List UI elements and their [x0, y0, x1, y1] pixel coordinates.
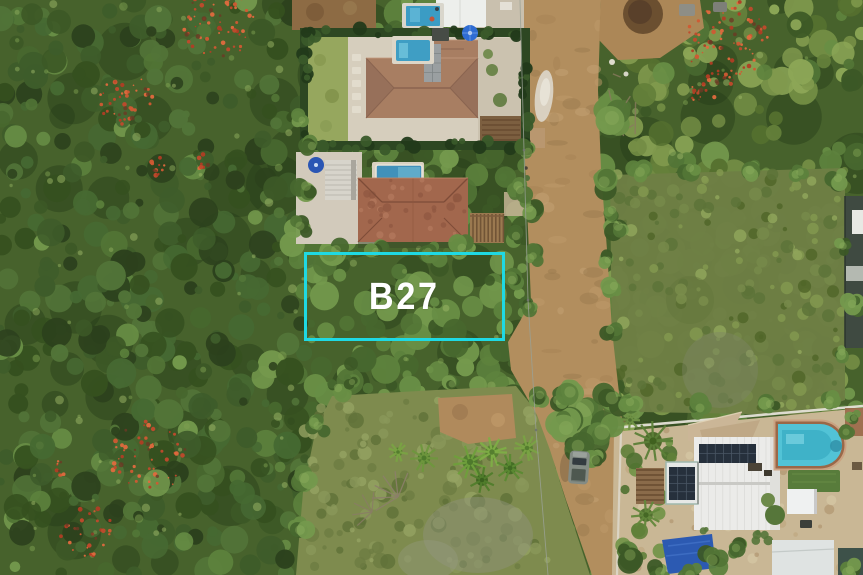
lot-boundary-b27: B27 [304, 252, 505, 341]
hedged-villa-compound [292, 0, 535, 155]
aerial-photo: B27 [0, 0, 863, 575]
lot-label: B27 [369, 278, 440, 316]
pickup-truck [559, 450, 590, 485]
scrub-lot [610, 168, 847, 415]
right-edge-building [845, 196, 863, 348]
